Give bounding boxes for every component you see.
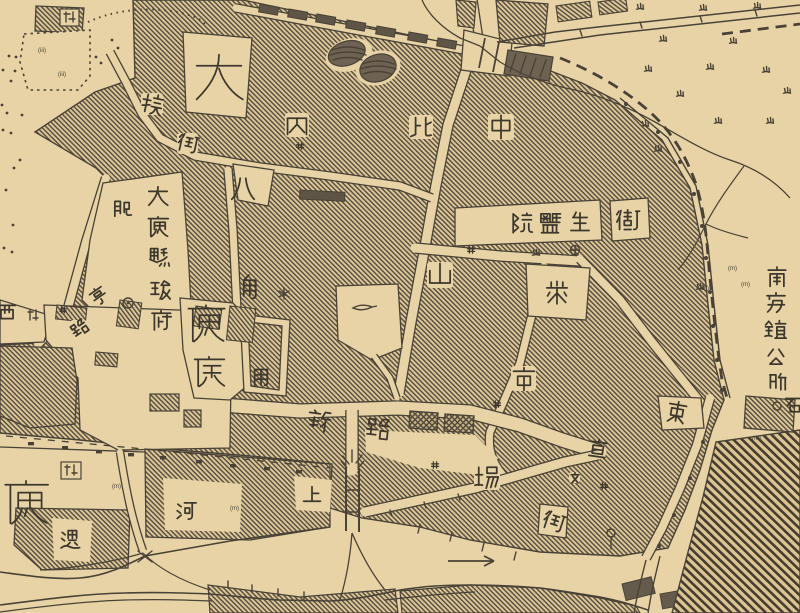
svg-text:(m): (m) bbox=[230, 506, 239, 512]
svg-text:(m): (m) bbox=[728, 266, 737, 272]
svg-text:(m): (m) bbox=[700, 286, 709, 292]
svg-text:(iii): (iii) bbox=[58, 72, 66, 78]
svg-text:(m): (m) bbox=[112, 484, 121, 490]
svg-text:(m): (m) bbox=[741, 282, 750, 288]
svg-text:(m): (m) bbox=[752, 436, 761, 442]
svg-text:(iii): (iii) bbox=[38, 48, 46, 54]
